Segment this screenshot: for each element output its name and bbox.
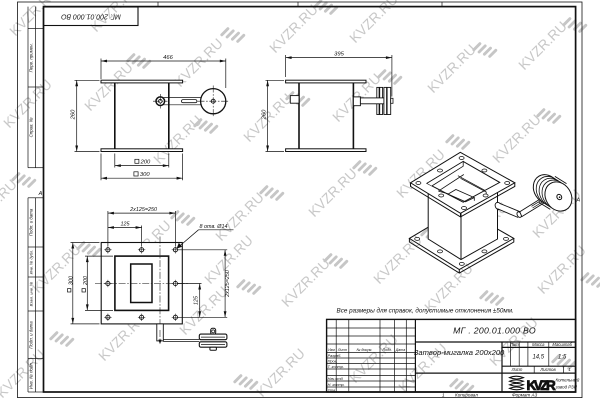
svg-text:466: 466 bbox=[163, 55, 173, 61]
svg-text:Подп.: Подп. bbox=[383, 348, 393, 352]
svg-text:Лист: Лист bbox=[337, 348, 347, 352]
svg-text:300: 300 bbox=[140, 172, 150, 178]
svg-text:1: 1 bbox=[568, 367, 570, 372]
svg-text:№ докум.: № докум. bbox=[356, 348, 372, 352]
svg-text:МГ . 200.01.000 ВО: МГ . 200.01.000 ВО bbox=[453, 325, 536, 335]
svg-text:Взам. инв. №: Взам. инв. № bbox=[28, 281, 33, 306]
svg-text:Дата: Дата bbox=[395, 348, 405, 352]
svg-text:Формат А3: Формат А3 bbox=[512, 393, 538, 398]
svg-text:300: 300 bbox=[69, 276, 75, 285]
svg-text:2х125=250: 2х125=250 bbox=[225, 270, 231, 298]
svg-text:Т. контр.: Т. контр. bbox=[328, 365, 344, 369]
svg-text:2х125=250: 2х125=250 bbox=[129, 207, 157, 213]
svg-text:Подп. и дата: Подп. и дата bbox=[28, 321, 33, 349]
svg-text:200: 200 bbox=[140, 160, 151, 166]
svg-text:А: А bbox=[38, 191, 43, 197]
svg-text:Перв. примен.: Перв. примен. bbox=[28, 43, 33, 72]
svg-text:125: 125 bbox=[194, 295, 200, 305]
svg-text:KVZR: KVZR bbox=[527, 378, 557, 393]
svg-text:1: 1 bbox=[442, 393, 445, 398]
svg-text:МГ. 200.01.000 ВО: МГ. 200.01.000 ВО bbox=[61, 12, 121, 19]
svg-text:200: 200 bbox=[83, 276, 89, 286]
svg-text:А: А bbox=[575, 198, 580, 204]
svg-text:Н. контр.: Н. контр. bbox=[328, 383, 345, 387]
svg-text:Копировал: Копировал bbox=[455, 393, 478, 398]
svg-text:125: 125 bbox=[121, 222, 131, 228]
svg-text:Изм: Изм bbox=[328, 348, 335, 352]
svg-text:Листов: Листов bbox=[539, 367, 556, 372]
svg-text:Масштаб: Масштаб bbox=[552, 342, 572, 347]
svg-text:8 отв. Ø14: 8 отв. Ø14 bbox=[200, 224, 228, 230]
svg-text:395: 395 bbox=[334, 52, 344, 58]
svg-text:Масса: Масса bbox=[532, 342, 545, 347]
svg-text:Котельный: Котельный bbox=[556, 378, 580, 383]
svg-text:Все размеры для справок, допус: Все размеры для справок, допустимые откл… bbox=[337, 307, 514, 315]
svg-text:Лист: Лист bbox=[511, 367, 523, 372]
svg-text:Лит.: Лит. bbox=[509, 342, 520, 347]
svg-text:260: 260 bbox=[262, 109, 268, 120]
svg-text:Инв. № дубл.: Инв. № дубл. bbox=[28, 250, 33, 275]
svg-text:завод РЗП: завод РЗП bbox=[555, 385, 578, 390]
svg-text:Справ. №: Справ. № bbox=[28, 117, 33, 137]
svg-text:1:5: 1:5 bbox=[558, 355, 567, 361]
svg-text:Подп. и дата: Подп. и дата bbox=[28, 208, 33, 236]
svg-text:14,5: 14,5 bbox=[532, 355, 544, 361]
svg-text:260: 260 bbox=[71, 109, 77, 120]
svg-text:Затвор-мигалка 200х200: Затвор-мигалка 200х200 bbox=[414, 348, 505, 357]
svg-text:Утв.: Утв. bbox=[328, 388, 337, 392]
svg-text:Нач.отд.: Нач.отд. bbox=[328, 377, 344, 381]
svg-text:Инв. № подл.: Инв. № подл. bbox=[28, 362, 33, 389]
svg-text:Пров.: Пров. bbox=[328, 360, 338, 364]
svg-text:Разраб.: Разраб. bbox=[328, 354, 342, 358]
